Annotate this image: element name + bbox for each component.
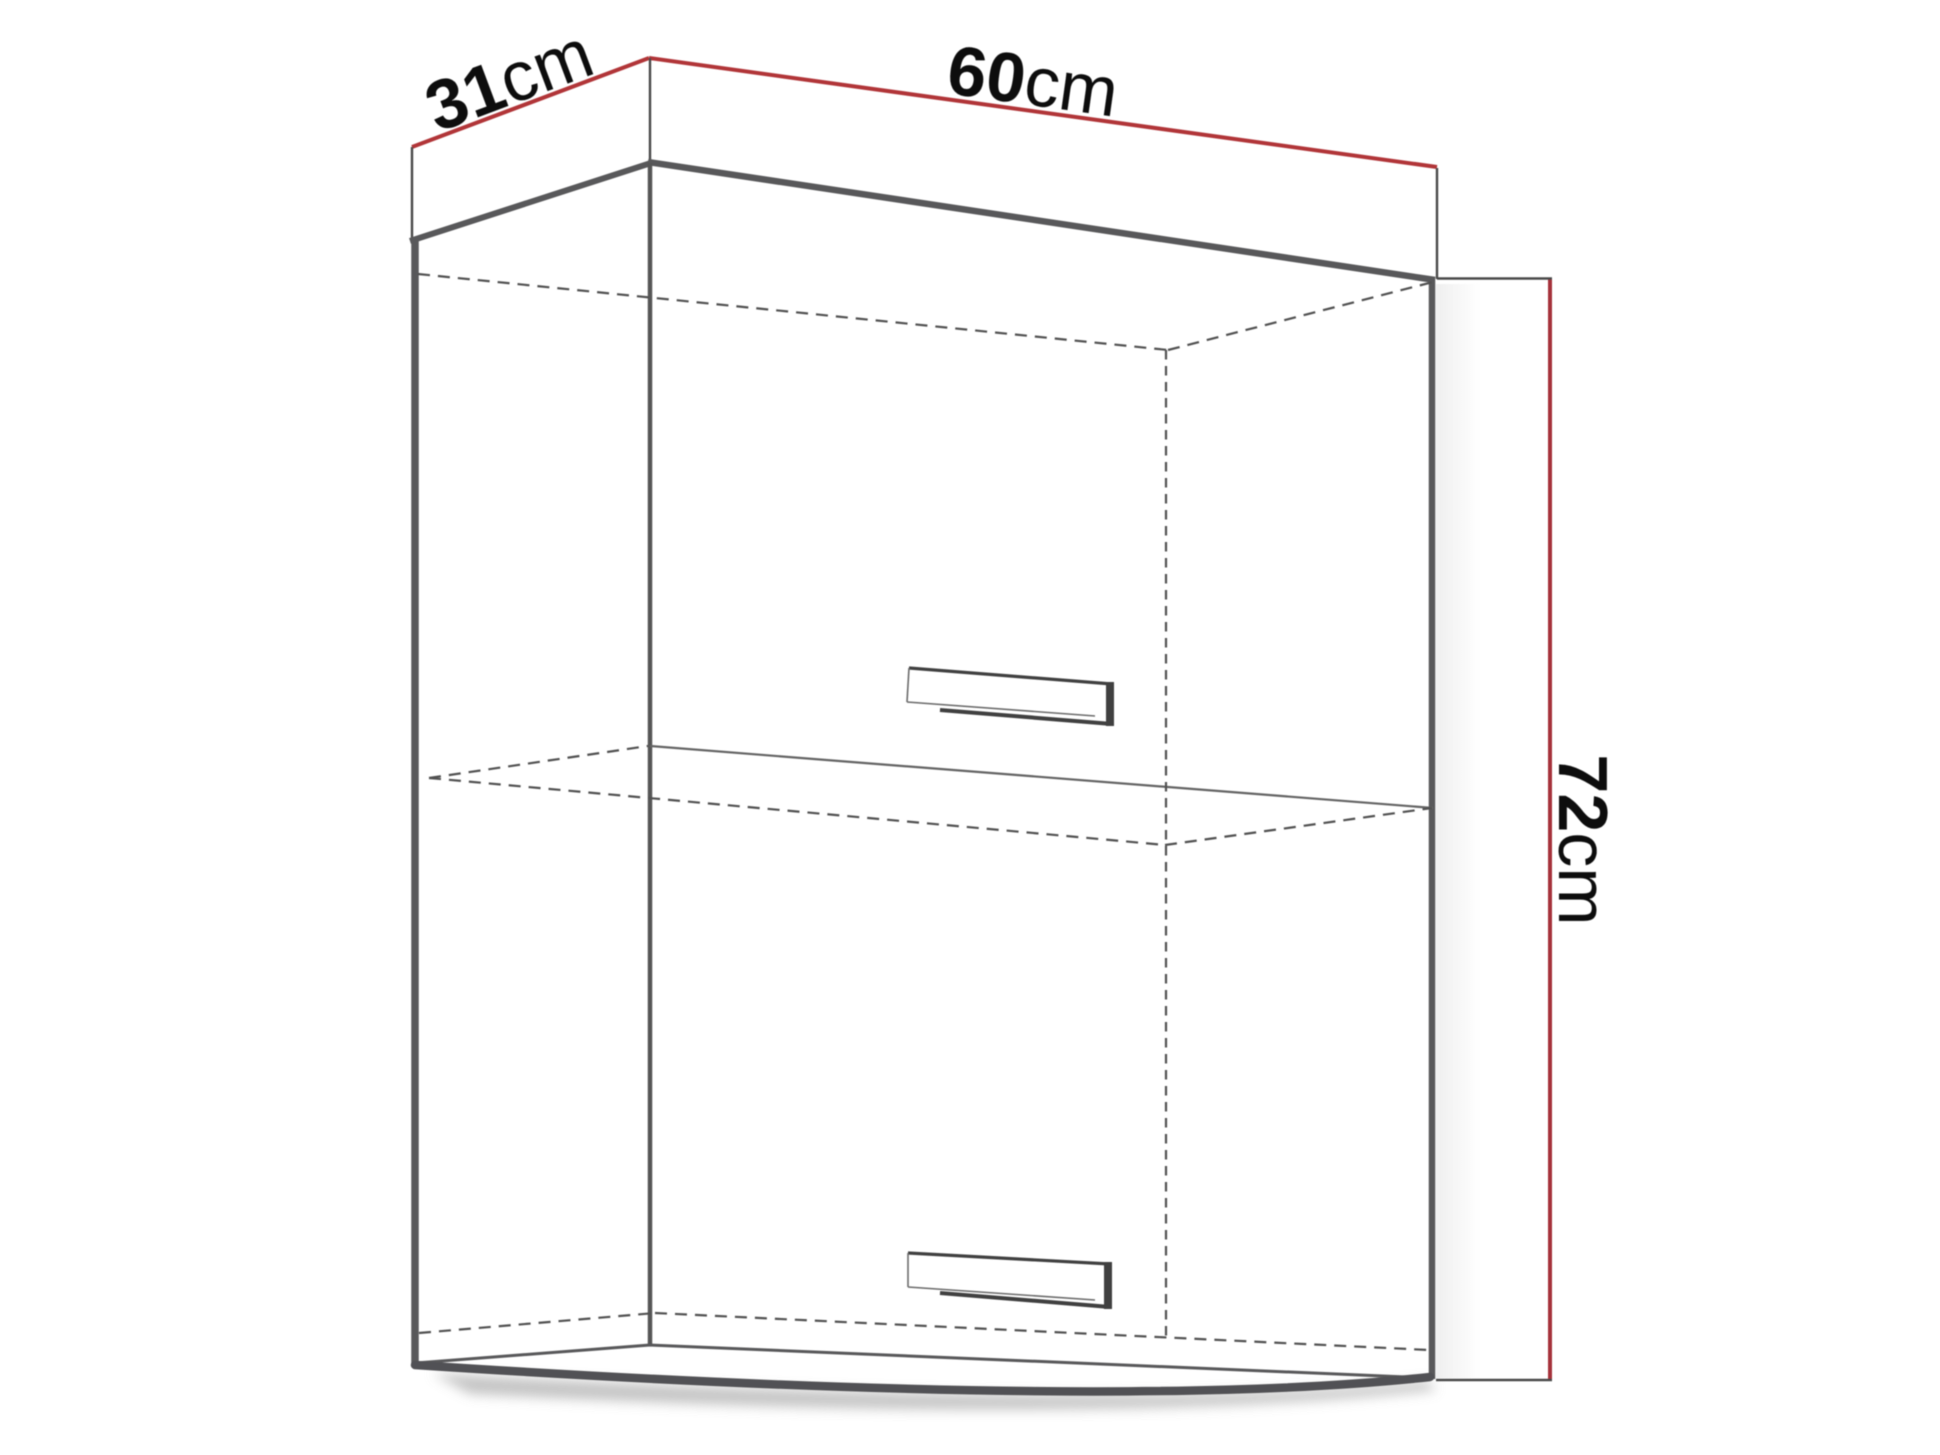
svg-text:72cm: 72cm xyxy=(1544,754,1622,925)
svg-text:31cm: 31cm xyxy=(415,13,603,146)
svg-text:60cm: 60cm xyxy=(943,30,1123,131)
